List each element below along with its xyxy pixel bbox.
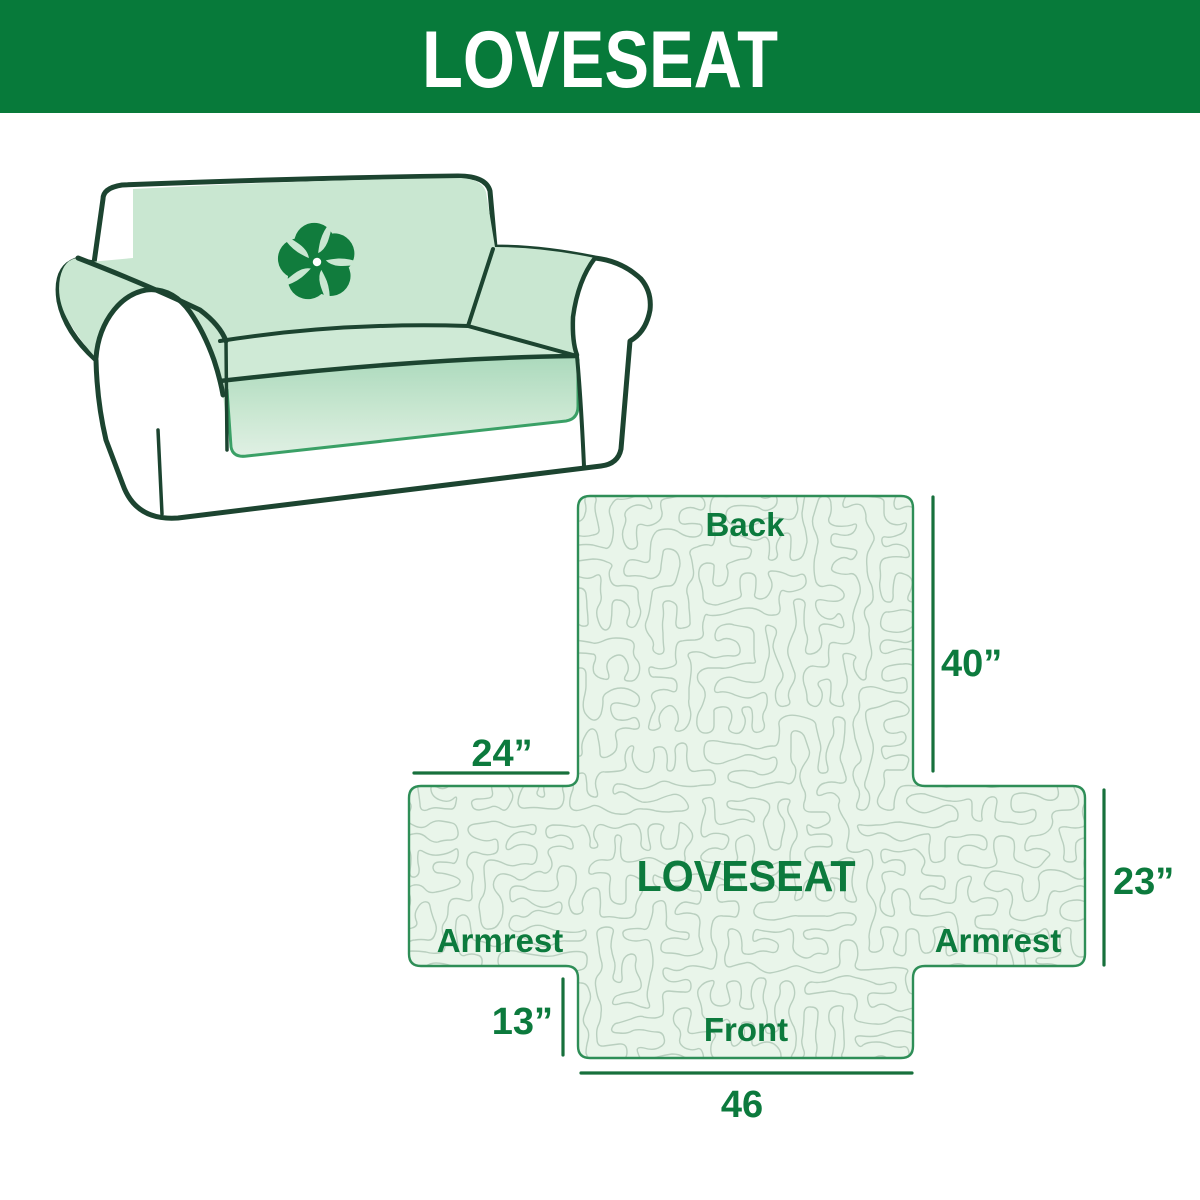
svg-text:Back: Back (706, 506, 786, 543)
svg-text:40”: 40” (941, 643, 1002, 685)
svg-text:LOVESEAT: LOVESEAT (422, 15, 778, 105)
svg-text:LOVESEAT: LOVESEAT (637, 852, 856, 901)
svg-text:Front: Front (704, 1011, 788, 1048)
svg-text:24”: 24” (471, 733, 532, 775)
svg-text:Armrest: Armrest (935, 922, 1062, 959)
svg-text:13”: 13” (492, 1001, 553, 1043)
svg-text:46: 46 (721, 1084, 763, 1126)
svg-text:23”: 23” (1113, 861, 1174, 903)
svg-text:Armrest: Armrest (437, 922, 564, 959)
